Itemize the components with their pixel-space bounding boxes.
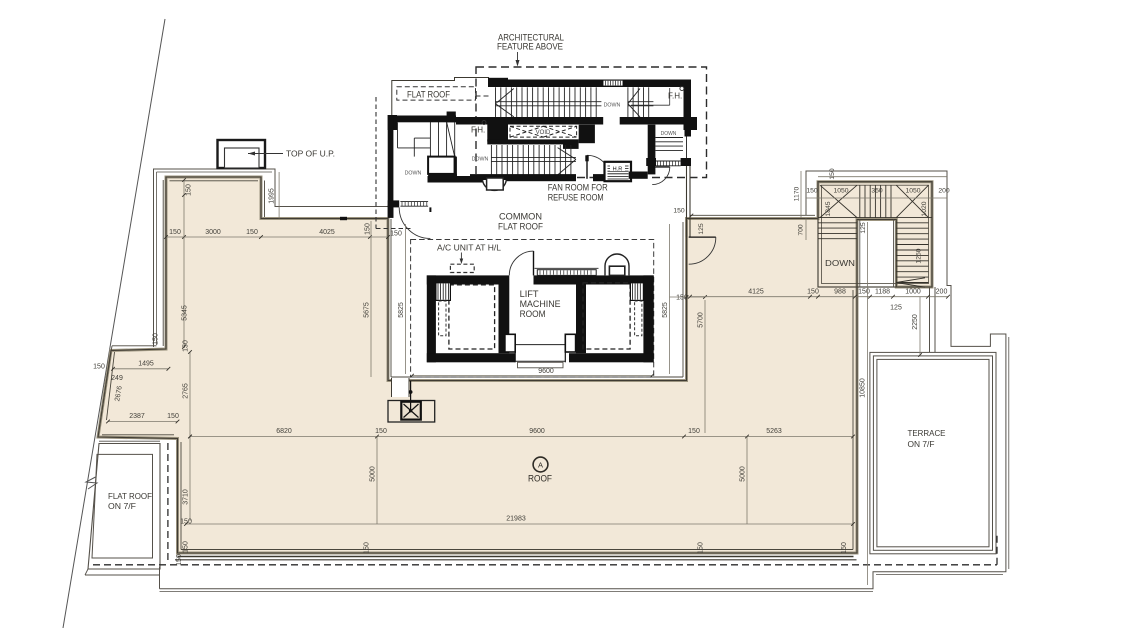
svg-text:ON 7/F: ON 7/F <box>908 439 935 449</box>
svg-text:5000: 5000 <box>740 466 747 482</box>
svg-text:125: 125 <box>890 305 902 312</box>
svg-text:5825: 5825 <box>398 302 405 318</box>
svg-text:150: 150 <box>186 184 193 196</box>
svg-text:150: 150 <box>841 542 848 554</box>
svg-text:150: 150 <box>829 168 836 180</box>
svg-text:5825: 5825 <box>662 302 669 318</box>
svg-text:2387: 2387 <box>129 413 145 420</box>
svg-text:1250: 1250 <box>916 248 923 263</box>
svg-text:9600: 9600 <box>538 368 554 375</box>
svg-text:DOWN: DOWN <box>604 102 621 108</box>
svg-text:150: 150 <box>176 554 183 566</box>
svg-text:1495: 1495 <box>138 360 154 367</box>
svg-text:150: 150 <box>806 187 818 194</box>
svg-text:150: 150 <box>364 542 371 554</box>
svg-text:150: 150 <box>807 288 819 295</box>
svg-text:150: 150 <box>167 413 179 420</box>
svg-text:700: 700 <box>798 224 805 236</box>
svg-text:200: 200 <box>938 187 950 194</box>
svg-text:DOWN: DOWN <box>661 131 677 137</box>
svg-text:9600: 9600 <box>529 428 545 435</box>
svg-text:H.R: H.R <box>613 166 623 172</box>
svg-text:150: 150 <box>375 428 387 435</box>
svg-text:1995: 1995 <box>269 188 276 204</box>
svg-text:150: 150 <box>673 208 685 215</box>
svg-text:150: 150 <box>183 541 190 553</box>
svg-text:150: 150 <box>153 333 160 345</box>
svg-text:TERRACE: TERRACE <box>908 428 946 438</box>
svg-text:3710: 3710 <box>183 489 190 505</box>
svg-text:5000: 5000 <box>370 466 377 482</box>
svg-text:988: 988 <box>834 288 846 295</box>
svg-text:REFUSE ROOM: REFUSE ROOM <box>548 193 604 203</box>
svg-text:249: 249 <box>111 375 123 382</box>
svg-text:ROOM: ROOM <box>520 309 546 319</box>
svg-text:5675: 5675 <box>364 302 371 318</box>
svg-text:ON 7/F: ON 7/F <box>108 502 136 511</box>
svg-text:150: 150 <box>169 229 181 236</box>
svg-text:A/C UNIT AT H/L: A/C UNIT AT H/L <box>437 242 501 252</box>
svg-text:21983: 21983 <box>506 516 526 523</box>
svg-text:150: 150 <box>676 295 688 302</box>
svg-text:200: 200 <box>936 288 948 295</box>
svg-text:DOWN: DOWN <box>405 171 422 177</box>
svg-text:150: 150 <box>365 223 372 235</box>
svg-text:150: 150 <box>698 542 705 554</box>
svg-text:5345: 5345 <box>182 305 189 321</box>
svg-text:10850: 10850 <box>860 378 867 398</box>
svg-text:150: 150 <box>390 231 402 238</box>
svg-text:5700: 5700 <box>698 312 705 328</box>
svg-text:COMMON: COMMON <box>499 212 542 222</box>
svg-text:LIFT: LIFT <box>520 289 540 299</box>
svg-text:5263: 5263 <box>766 428 782 435</box>
svg-text:125: 125 <box>698 223 705 235</box>
svg-text:MACHINE: MACHINE <box>520 299 561 309</box>
svg-text:150: 150 <box>93 364 105 371</box>
svg-text:FLAT ROOF: FLAT ROOF <box>108 492 152 501</box>
svg-text:TOP OF U.P.: TOP OF U.P. <box>286 150 335 159</box>
svg-text:FLAT ROOF: FLAT ROOF <box>498 222 543 232</box>
svg-text:125: 125 <box>860 222 867 234</box>
svg-text:1170: 1170 <box>794 186 801 201</box>
svg-text:4025: 4025 <box>319 229 335 236</box>
svg-text:1000: 1000 <box>905 288 921 295</box>
svg-text:DOWN: DOWN <box>472 156 489 162</box>
svg-text:F.H.: F.H. <box>471 126 485 135</box>
svg-text:3000: 3000 <box>205 229 221 236</box>
svg-text:F.H.: F.H. <box>668 92 682 101</box>
svg-text:150: 150 <box>858 288 870 295</box>
svg-text:350: 350 <box>871 187 883 194</box>
svg-text:FAN ROOM FOR: FAN ROOM FOR <box>548 183 608 193</box>
svg-text:VOID: VOID <box>536 130 551 136</box>
svg-text:1845: 1845 <box>825 201 832 216</box>
svg-text:FEATURE ABOVE: FEATURE ABOVE <box>497 42 563 52</box>
svg-text:150: 150 <box>183 340 190 352</box>
svg-text:2765: 2765 <box>183 383 190 399</box>
svg-text:4125: 4125 <box>748 288 764 295</box>
svg-text:6820: 6820 <box>276 428 292 435</box>
svg-text:FLAT ROOF: FLAT ROOF <box>407 89 450 99</box>
svg-text:1050: 1050 <box>905 187 920 194</box>
svg-text:150: 150 <box>688 428 700 435</box>
svg-text:1050: 1050 <box>833 187 848 194</box>
svg-text:ROOF: ROOF <box>528 474 553 484</box>
svg-text:2250: 2250 <box>912 314 919 330</box>
svg-text:DOWN: DOWN <box>825 259 855 268</box>
svg-text:A: A <box>538 461 543 470</box>
svg-text:150: 150 <box>246 229 258 236</box>
svg-text:1020: 1020 <box>921 201 928 216</box>
svg-text:1188: 1188 <box>875 288 890 295</box>
